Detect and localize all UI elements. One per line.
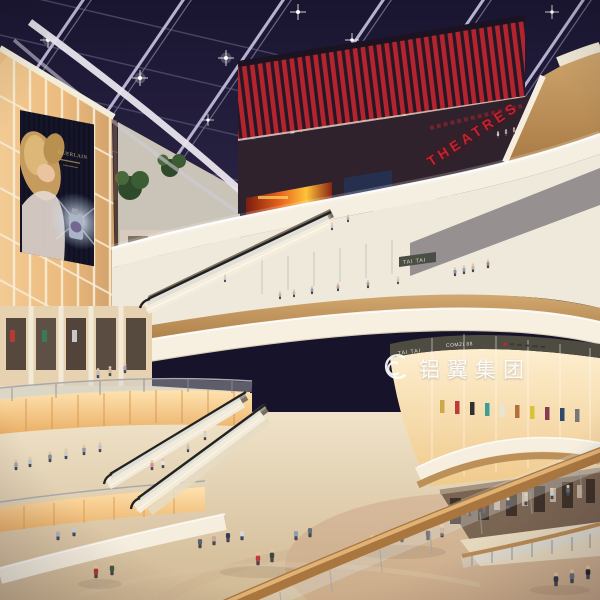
mall-atrium-rendering: GUERLAIN: [0, 0, 600, 600]
atrium-illustration: GUERLAIN: [0, 0, 600, 600]
vignette: [0, 0, 600, 600]
